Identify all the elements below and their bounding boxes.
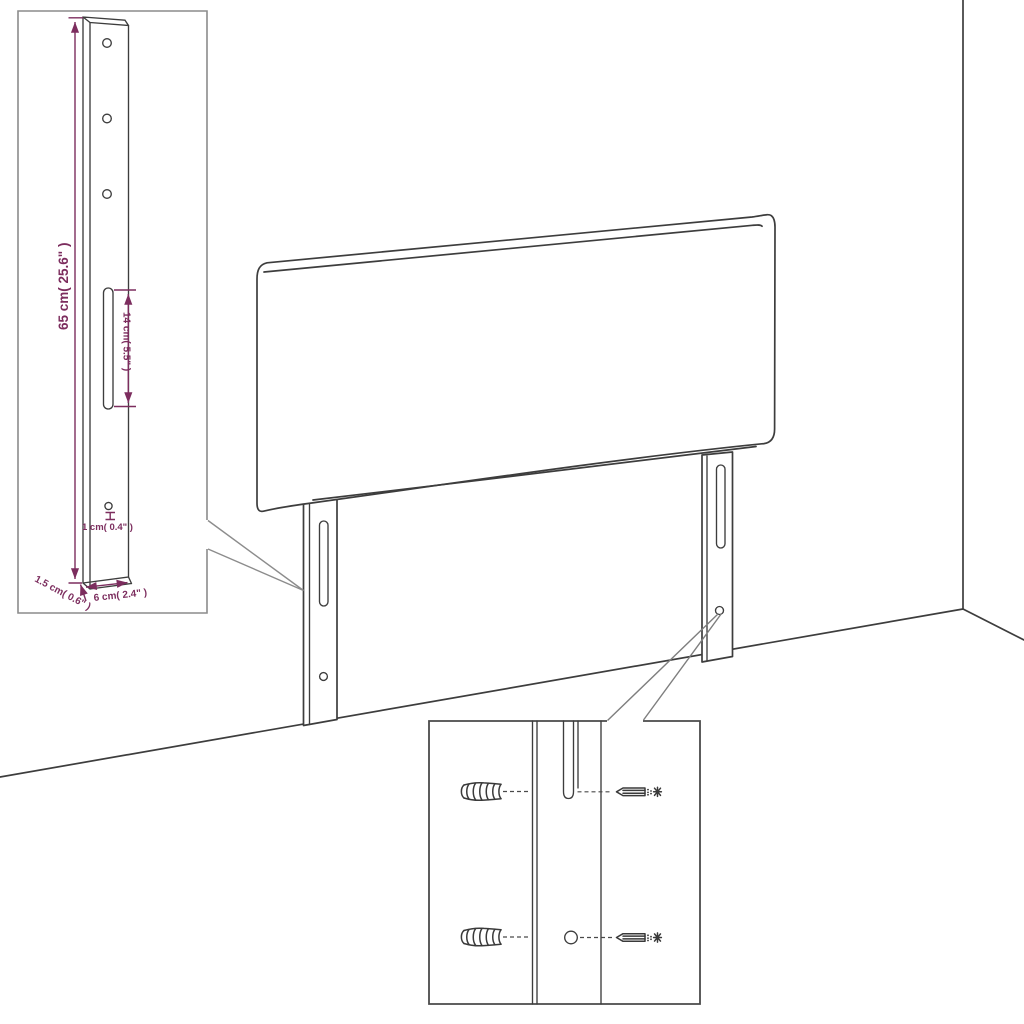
headboard-right-leg [702, 452, 733, 662]
dimension-slot-length-label: 14 cm( 5.5" ) [121, 312, 132, 371]
headboard [257, 215, 775, 726]
leg-detail-callout [208, 521, 304, 591]
mounting-inset-border [429, 721, 700, 1004]
assembly-diagram-canvas: 65 cm( 25.6" ) 14 cm( 5.5" ) 1 cm( 0.4" … [0, 0, 1024, 1024]
floor-line-right [963, 609, 1024, 640]
mounting-detail-inset [429, 721, 700, 1004]
dimension-hole-diameter-label: 1 cm( 0.4" ) [82, 522, 133, 533]
leg-detail-inset: 65 cm( 25.6" ) 14 cm( 5.5" ) 1 cm( 0.4" … [18, 11, 207, 613]
dimension-leg-height-label: 65 cm( 25.6" ) [56, 243, 71, 330]
headboard-left-leg [304, 478, 338, 726]
headboard-panel [257, 215, 775, 512]
assembly-diagram: 65 cm( 25.6" ) 14 cm( 5.5" ) 1 cm( 0.4" … [0, 0, 1024, 1024]
